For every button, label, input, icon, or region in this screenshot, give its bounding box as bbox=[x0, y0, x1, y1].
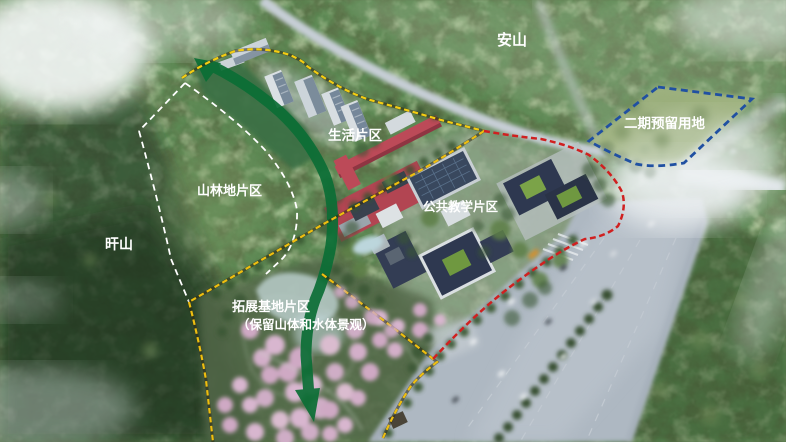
svg-text:旰山: 旰山 bbox=[105, 236, 133, 252]
svg-text:生活片区: 生活片区 bbox=[328, 127, 382, 143]
svg-text:山林地片区: 山林地片区 bbox=[197, 183, 262, 198]
svg-text:拓展基地片区: 拓展基地片区 bbox=[232, 299, 310, 314]
svg-text:公共教学片区: 公共教学片区 bbox=[423, 199, 499, 214]
svg-text:二期预留用地: 二期预留用地 bbox=[624, 115, 705, 131]
svg-text:安山: 安山 bbox=[497, 31, 527, 49]
svg-text:（保留山体和水体景观）: （保留山体和水体景观） bbox=[237, 317, 375, 332]
